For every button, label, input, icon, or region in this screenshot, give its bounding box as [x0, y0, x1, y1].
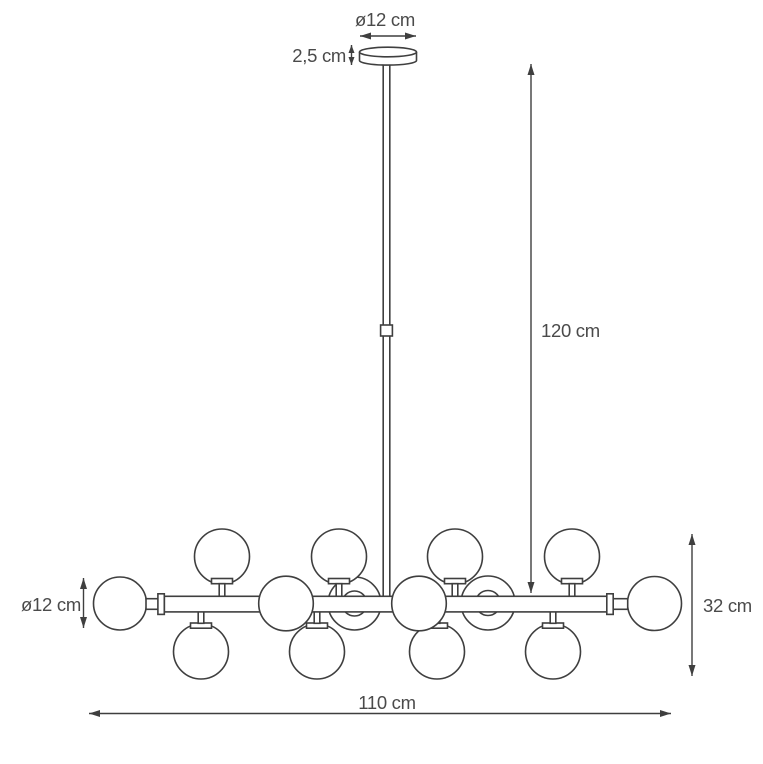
diagram-canvas: ø12 cm 2,5 cm 120 cm ø12 cm 32 cm 110 cm [0, 0, 763, 764]
label-body-height: 32 cm [703, 595, 752, 616]
glass-sphere-end-left [94, 577, 159, 630]
glass-sphere-top-4 [545, 529, 600, 597]
label-sphere-diameter: ø12 cm [21, 594, 81, 615]
sphere-outline [428, 529, 483, 584]
glass-sphere-front-right [392, 576, 447, 631]
chandelier-drawing [94, 47, 682, 679]
sphere-outline [174, 624, 229, 679]
sphere-stem [146, 599, 158, 610]
label-body-width: 110 cm [358, 692, 416, 713]
glass-sphere-end-right [613, 577, 681, 631]
sphere-outline [312, 529, 367, 584]
chandelier-dimension-diagram: ø12 cm 2,5 cm 120 cm ø12 cm 32 cm 110 cm [0, 0, 763, 764]
ceiling-canopy [360, 47, 417, 65]
label-canopy-diameter: ø12 cm [355, 9, 415, 30]
glass-sphere-front-left [259, 576, 314, 631]
chandelier-bar [164, 596, 607, 612]
sphere-outline [195, 529, 250, 584]
bar-end-cap-right [607, 594, 613, 615]
label-canopy-height: 2,5 cm [292, 45, 346, 66]
glass-sphere-bottom-4 [526, 611, 581, 680]
sphere-outline [94, 577, 147, 630]
canopy-top [360, 47, 417, 57]
bar-end-cap-left [158, 594, 164, 615]
sphere-outline [290, 624, 345, 679]
sphere-outline [410, 624, 465, 679]
sphere-stem [219, 584, 225, 598]
label-rod-length: 120 cm [541, 320, 600, 341]
glass-sphere-top-1 [195, 529, 250, 597]
sphere-stem [613, 599, 628, 610]
sphere-stem [452, 584, 458, 598]
rod-connector [381, 325, 393, 336]
glass-sphere-bottom-1 [174, 611, 229, 680]
sphere-outline [526, 624, 581, 679]
sphere-stem [336, 584, 342, 598]
sphere-outline [545, 529, 600, 584]
sphere-outline [628, 577, 682, 631]
sphere-stem [569, 584, 575, 598]
